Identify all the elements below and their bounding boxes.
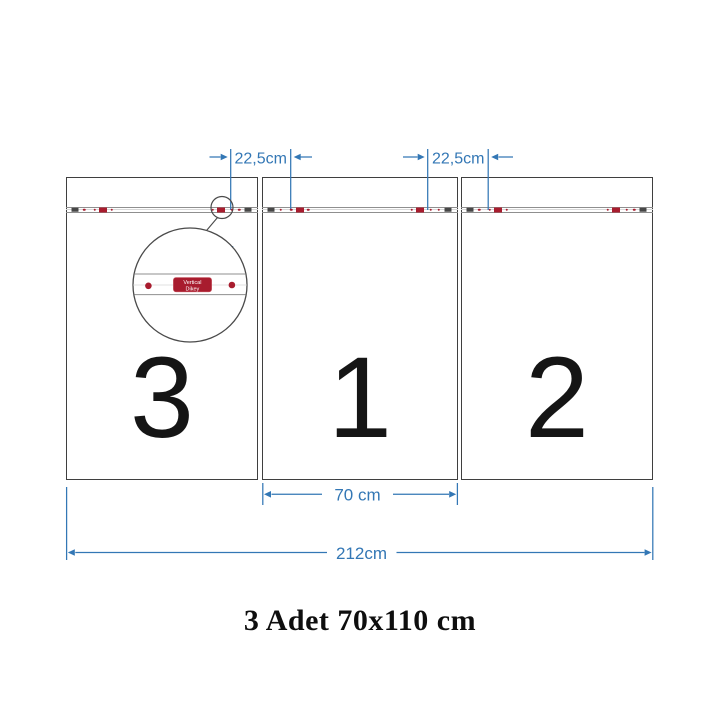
rail-dot-mark [625,209,628,212]
arrow-left-icon [491,154,498,160]
hanger-mark [217,207,225,212]
dimension-total-width: 212cm [67,487,653,563]
panel-3: 3 [66,177,258,480]
rail-dot-mark [606,209,609,212]
bracket-mark [268,208,275,213]
bracket-mark [467,208,474,213]
rail-dot-mark [478,209,481,212]
arrow-right-icon [449,491,456,498]
rail-dot-mark [430,209,433,212]
hanger-mark [99,207,107,212]
panel-1: 1 [262,177,458,480]
panel-2: 2 [461,177,653,480]
hanging-rail [66,207,258,214]
hanging-rail [262,207,458,214]
arrow-right-icon [645,549,652,556]
arrow-left-icon [68,549,75,556]
dimension-panel-width: 70 cm [263,483,458,505]
rail-dot-mark [211,209,214,212]
arrow-right-icon [221,154,228,160]
rail-dot-mark [280,209,283,212]
dimension-label: 22,5cm [234,151,286,168]
rail-dot-mark [505,209,508,212]
bracket-mark [444,208,451,213]
rail-dot-mark [438,209,441,212]
rail-dot-mark [633,209,636,212]
rail-dot-mark [238,209,241,212]
bracket-mark [244,208,251,213]
hanger-mark [416,207,424,212]
dimension-label: 70 cm [334,486,380,505]
caption: 3 Adet 70x110 cm [0,603,720,639]
dimension-label: 22,5cm [432,151,484,168]
rail-dot-mark [489,209,492,212]
arrow-right-icon [418,154,425,160]
bracket-mark [639,208,646,213]
hanger-mark [612,207,620,212]
panel-number: 3 [67,355,257,441]
rail-dot-mark [94,209,97,212]
bracket-mark [72,208,79,213]
rail-dot-mark [110,209,113,212]
dimension-label: 212cm [336,544,387,563]
hanger-mark [296,207,304,212]
rail-dot-mark [230,209,233,212]
diagram-canvas: 3 1 2 22,5cm 22,5cm [0,0,720,720]
hanging-rail [461,207,653,214]
hanger-mark [494,207,502,212]
rail-dot-mark [83,209,86,212]
panel-number: 1 [263,355,457,441]
arrow-left-icon [264,491,271,498]
rail-dot-mark [290,209,293,212]
rail-dot-mark [307,209,310,212]
rail-dot-mark [410,209,413,212]
arrow-left-icon [294,154,301,160]
panel-number: 2 [462,355,652,441]
